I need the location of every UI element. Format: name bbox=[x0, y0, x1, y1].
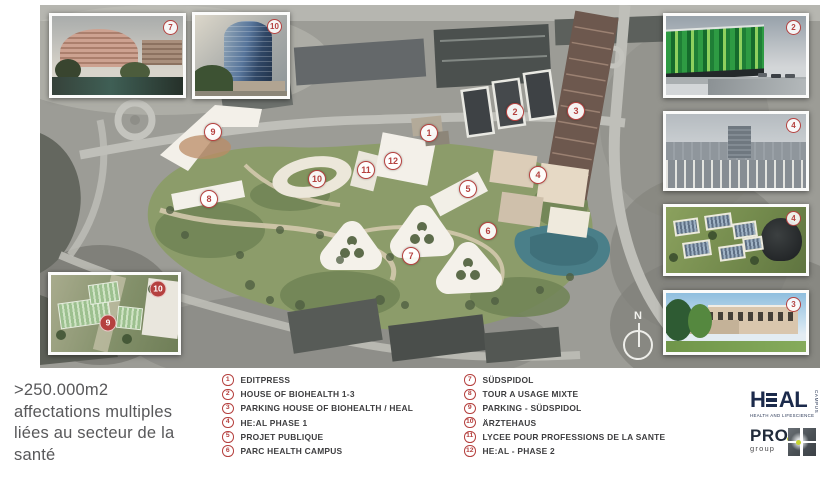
map-marker-5: 5 bbox=[459, 180, 477, 198]
legend-item: 6 PARC HEALTH CAMPUS bbox=[222, 444, 457, 458]
map-marker-4: 4 bbox=[529, 166, 547, 184]
heal-wordmark: H AL bbox=[750, 389, 818, 411]
legend-item: 10 ÄRZTEHAUS bbox=[464, 416, 714, 430]
lawn bbox=[666, 341, 806, 352]
legend-item: 2 HOUSE OF BIOHEALTH 1-3 bbox=[222, 387, 457, 401]
legend-label: TOUR A USAGE MIXTE bbox=[483, 389, 579, 399]
inset-sudspidol-render: 7 bbox=[49, 13, 186, 98]
inset-house-of-biohealth-photo: 2 bbox=[663, 13, 809, 98]
heal-stylized-e-icon bbox=[766, 393, 777, 407]
legend-label: HE:AL PHASE 1 bbox=[241, 418, 308, 428]
heal-letters-al: AL bbox=[779, 389, 807, 411]
inset-marker-4b: 4 bbox=[786, 211, 801, 226]
legend-number-badge: 5 bbox=[222, 431, 234, 443]
tower-floor-lines bbox=[224, 21, 272, 83]
legend-label: EDITPRESS bbox=[241, 375, 291, 385]
headline: >250.000m2 affectations multiples liées … bbox=[14, 380, 196, 466]
street bbox=[708, 79, 806, 95]
legend-item: 12 HE:AL - PHASE 2 bbox=[464, 444, 714, 458]
heal-logo-campus-vertical: CAMPUS bbox=[814, 390, 819, 413]
inset-marker-2: 2 bbox=[786, 20, 801, 35]
legend-label: PARKING - SÜDSPIDOL bbox=[483, 403, 582, 413]
tree bbox=[688, 304, 712, 338]
inset-arztehaus-render: 10 bbox=[192, 12, 290, 99]
legend-label: HOUSE OF BIOHEALTH 1-3 bbox=[241, 389, 355, 399]
legend-item: 4 HE:AL PHASE 1 bbox=[222, 416, 457, 430]
inset-heal-phase1-photo: 4 bbox=[663, 111, 809, 191]
legend-number-badge: 7 bbox=[464, 374, 476, 386]
map-marker-6: 6 bbox=[479, 222, 497, 240]
legend-label: ÄRZTEHAUS bbox=[483, 418, 537, 428]
solar-roof-building bbox=[673, 217, 700, 236]
legend-item: 7 SÜDSPIDOL bbox=[464, 373, 714, 387]
map-marker-8: 8 bbox=[200, 190, 218, 208]
pro-group-logo: PRO group bbox=[750, 427, 818, 465]
inset-marker-10b: 10 bbox=[150, 281, 167, 298]
legend-label: PROJET PUBLIQUE bbox=[241, 432, 324, 442]
north-compass: N bbox=[623, 330, 653, 360]
legend-item: 5 PROJET PUBLIQUE bbox=[222, 430, 457, 444]
solar-roof-building bbox=[704, 212, 733, 231]
parked-car bbox=[771, 74, 781, 78]
legend-label: PARKING HOUSE OF BIOHEALTH / HEAL bbox=[241, 403, 414, 413]
tree bbox=[750, 256, 759, 265]
inset-marker-9: 9 bbox=[100, 315, 117, 332]
green-parking-building bbox=[88, 281, 121, 305]
legend-number-badge: 8 bbox=[464, 389, 476, 401]
green-building bbox=[116, 306, 144, 330]
legend-label: PARC HEALTH CAMPUS bbox=[241, 446, 343, 456]
heal-campus-logo: H AL HEALTH AND LIFESCIENCE CAMPUS bbox=[750, 389, 818, 423]
legend-number-badge: 2 bbox=[222, 389, 234, 401]
building-annex bbox=[142, 40, 181, 65]
inset-marker-4: 4 bbox=[786, 118, 801, 133]
legend-number-badge: 12 bbox=[464, 445, 476, 457]
legend-column-2: 7 SÜDSPIDOL 8 TOUR A USAGE MIXTE 9 PARKI… bbox=[464, 373, 714, 458]
tree bbox=[122, 334, 132, 344]
legend-item: 11 LYCEE POUR PROFESSIONS DE LA SANTE bbox=[464, 430, 714, 444]
legend-label: HE:AL - PHASE 2 bbox=[483, 446, 555, 456]
inset-parking-sudspidol-render: 9 10 bbox=[48, 272, 181, 355]
inset-campus-aerial-render: 4 bbox=[663, 204, 809, 276]
heal-logo-subtitle: HEALTH AND LIFESCIENCE bbox=[750, 413, 818, 418]
tree bbox=[669, 253, 678, 262]
parked-car bbox=[785, 74, 795, 78]
legend-column-1: 1 EDITPRESS 2 HOUSE OF BIOHEALTH 1-3 3 P… bbox=[222, 373, 457, 458]
legend-label: SÜDSPIDOL bbox=[483, 375, 534, 385]
inset-marker-10: 10 bbox=[267, 19, 282, 34]
legend-item: 8 TOUR A USAGE MIXTE bbox=[464, 387, 714, 401]
masterplan-slide: 1 2 3 4 5 6 7 8 9 10 11 12 N 7 10 bbox=[0, 0, 820, 485]
legend-number-badge: 11 bbox=[464, 431, 476, 443]
office-tower bbox=[728, 126, 752, 159]
legend-item: 9 PARKING - SÜDSPIDOL bbox=[464, 401, 714, 415]
map-marker-7: 7 bbox=[402, 247, 420, 265]
compass-needle bbox=[638, 323, 640, 347]
map-marker-10: 10 bbox=[308, 170, 326, 188]
legend-label: LYCEE POUR PROFESSIONS DE LA SANTE bbox=[483, 432, 666, 442]
parked-car bbox=[758, 73, 767, 77]
legend-number-badge: 1 bbox=[222, 374, 234, 386]
inset-marker-3: 3 bbox=[786, 297, 801, 312]
inset-parking-render: 3 bbox=[663, 290, 809, 355]
map-marker-2: 2 bbox=[506, 103, 524, 121]
legend-number-badge: 6 bbox=[222, 445, 234, 457]
slatted-facade bbox=[666, 160, 806, 188]
map-marker-12: 12 bbox=[384, 152, 402, 170]
inset-marker-7: 7 bbox=[163, 20, 178, 35]
legend-number-badge: 4 bbox=[222, 417, 234, 429]
map-marker-9: 9 bbox=[204, 123, 222, 141]
pro-grid-dot-icon bbox=[796, 440, 801, 445]
ground bbox=[195, 91, 287, 96]
legend-item: 3 PARKING HOUSE OF BIOHEALTH / HEAL bbox=[222, 401, 457, 415]
map-marker-1: 1 bbox=[420, 124, 438, 142]
tree bbox=[708, 231, 717, 240]
legend-item: 1 EDITPRESS bbox=[222, 373, 457, 387]
legend-number-badge: 3 bbox=[222, 403, 234, 415]
legend-number-badge: 9 bbox=[464, 403, 476, 415]
compass-north-label: N bbox=[634, 310, 642, 322]
legend-number-badge: 10 bbox=[464, 417, 476, 429]
pro-group-grid-icon bbox=[788, 428, 816, 456]
map-marker-3: 3 bbox=[567, 102, 585, 120]
water bbox=[52, 77, 183, 95]
heal-letter-h: H bbox=[750, 389, 765, 411]
map-marker-11: 11 bbox=[357, 161, 375, 179]
